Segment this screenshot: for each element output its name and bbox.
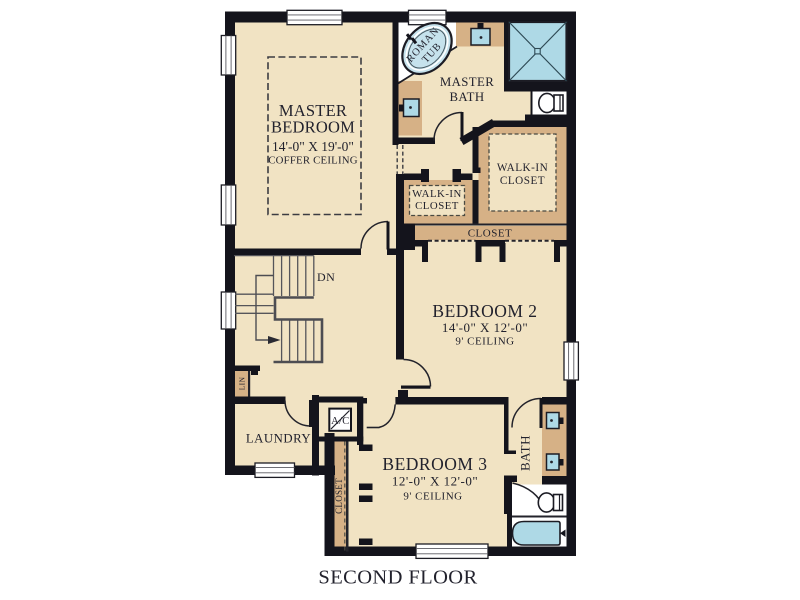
svg-text:LIN: LIN [237,377,246,391]
svg-text:MASTER: MASTER [440,75,494,89]
svg-text:LAUNDRY: LAUNDRY [246,432,311,446]
svg-text:9' CEILING: 9' CEILING [455,336,514,348]
svg-text:A/C: A/C [331,416,349,427]
svg-text:BATH: BATH [518,435,533,471]
svg-text:SECOND FLOOR: SECOND FLOOR [318,567,477,589]
svg-text:WALK-IN: WALK-IN [412,188,462,200]
svg-text:BEDROOM 3: BEDROOM 3 [382,454,487,474]
svg-text:9' CEILING: 9' CEILING [403,491,462,503]
svg-text:CLOSET: CLOSET [334,478,344,514]
svg-text:CLOSET: CLOSET [468,228,513,240]
svg-text:BEDROOM: BEDROOM [271,118,355,137]
svg-text:CLOSET: CLOSET [415,200,459,212]
svg-text:BATH: BATH [449,90,484,104]
svg-text:14'-0" X 19'-0": 14'-0" X 19'-0" [272,139,354,154]
svg-text:COFFER CEILING: COFFER CEILING [268,155,357,167]
svg-text:BEDROOM 2: BEDROOM 2 [432,301,537,321]
svg-text:WALK-IN: WALK-IN [497,162,548,174]
svg-text:CLOSET: CLOSET [500,175,545,187]
svg-text:12'-0" X 12'-0": 12'-0" X 12'-0" [392,474,478,489]
svg-text:DN: DN [317,270,335,284]
svg-text:14'-0" X 12'-0": 14'-0" X 12'-0" [442,320,528,335]
